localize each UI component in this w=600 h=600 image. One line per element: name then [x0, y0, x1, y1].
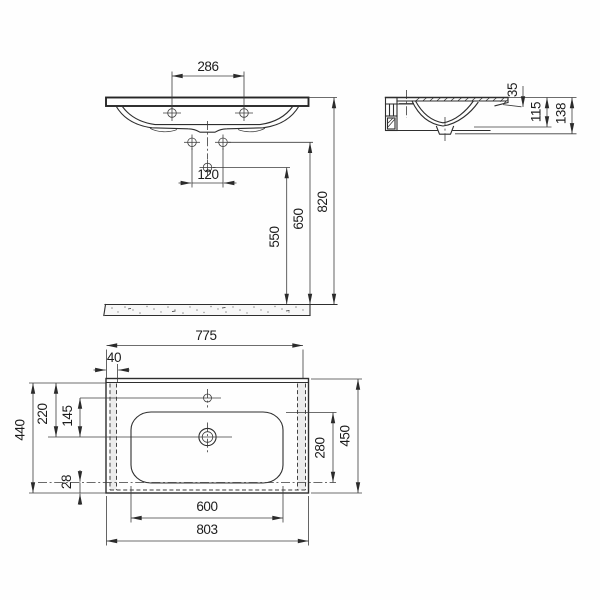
washbasin-dimension-drawing: 286 120 550 650 820	[0, 0, 600, 600]
fixing-hole-left-marker	[184, 135, 200, 151]
dim-label-120: 120	[197, 167, 218, 182]
dim-label-138: 138	[554, 103, 569, 124]
dim-label-550: 550	[267, 226, 282, 247]
rim-profile	[106, 98, 309, 107]
inner-bowl-outline	[131, 412, 283, 483]
technical-drawing-sheet: 286 120 550 650 820	[0, 0, 600, 600]
tap-hole-symbol	[80, 389, 221, 408]
wall-bracket-section	[386, 98, 414, 131]
drain-symbol	[48, 423, 232, 453]
dim-label-28: 28	[59, 475, 74, 489]
dim-label-803: 803	[196, 522, 217, 537]
dim-label-650: 650	[291, 208, 306, 229]
dim-label-286: 286	[197, 59, 218, 74]
dim-label-40: 40	[107, 350, 121, 365]
floor-section	[104, 305, 337, 316]
front-view: 286 120 550 650 820	[104, 59, 337, 316]
dim-label-220: 220	[35, 403, 50, 424]
bowl-section-inner	[416, 101, 474, 123]
dim-label-280: 280	[313, 437, 328, 458]
dim-label-145: 145	[60, 405, 75, 426]
dim-label-35: 35	[505, 83, 520, 97]
dim-label-115: 115	[529, 102, 544, 122]
side-view: 35 115 138	[386, 83, 577, 141]
dim-label-450: 450	[338, 425, 353, 446]
dim-label-600: 600	[196, 499, 217, 514]
plan-view: 775 40 220 145 440 28 280 450	[13, 328, 363, 546]
dim-label-820: 820	[315, 191, 330, 212]
dim-label-775: 775	[195, 328, 216, 343]
dim-label-440: 440	[13, 419, 28, 440]
